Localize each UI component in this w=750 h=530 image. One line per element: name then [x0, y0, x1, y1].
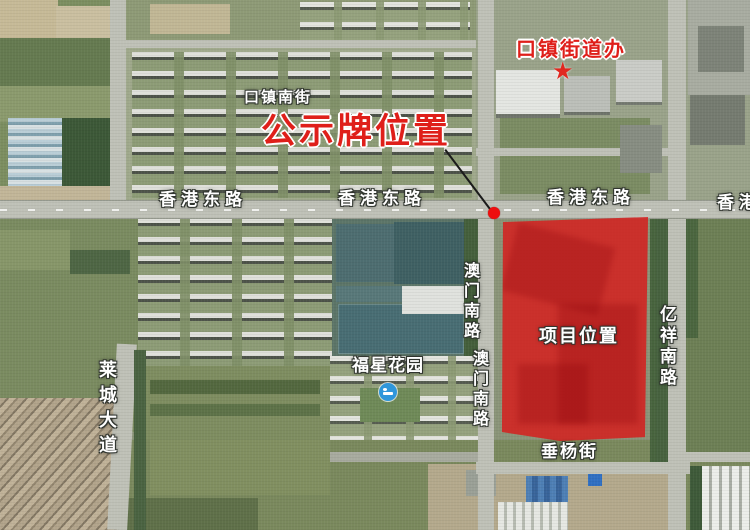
star-icon: ★ — [552, 60, 574, 84]
field-patch — [0, 38, 112, 86]
hk-east-road-label-center: 香港东路 — [338, 190, 426, 207]
project-location-label: 项目位置 — [539, 327, 619, 345]
fuxing-garden-label: 福星花园 — [352, 357, 424, 374]
field-patch — [0, 230, 70, 270]
field-patch — [138, 366, 336, 440]
warehouse — [498, 502, 568, 530]
field-patch — [0, 86, 112, 122]
tree-cluster — [690, 466, 702, 530]
road-chuiyang-street — [330, 452, 478, 462]
aomen-south-road-label-upper: 澳门南路 — [461, 262, 477, 342]
overlay-shade — [518, 364, 588, 424]
building-rows — [300, 2, 470, 40]
road-vertical-left — [110, 0, 126, 204]
building — [690, 95, 745, 145]
building — [620, 125, 662, 173]
laicheng-avenue-label: 莱城大道 — [98, 360, 116, 460]
notice-board-label: 公示牌位置 — [261, 114, 451, 149]
hk-east-road-label-edge: 香港 — [717, 194, 750, 211]
pond — [394, 222, 466, 284]
minor-road — [126, 40, 476, 48]
kouzhen-south-street-label: 口镇南街 — [244, 90, 312, 105]
field-patch — [150, 4, 230, 34]
chuiyang-street-label: 垂杨街 — [541, 443, 598, 460]
road-yixiang-south — [668, 0, 686, 530]
greenhouse-roofs — [8, 118, 62, 186]
building — [496, 70, 560, 118]
road-chuiyang-street — [476, 462, 690, 474]
hk-east-road-label-left: 香港东路 — [159, 191, 247, 208]
yixiang-south-road-label: 亿祥南路 — [658, 305, 675, 389]
tree-cluster — [70, 250, 130, 274]
pond — [336, 224, 394, 282]
building — [402, 286, 464, 314]
minor-road — [686, 452, 750, 462]
street-office-label: 口镇街道办 — [516, 40, 626, 60]
hk-east-road-label-right: 香港东路 — [547, 189, 635, 206]
building — [698, 26, 744, 72]
road-center-line — [0, 209, 750, 211]
tree-cluster — [62, 118, 110, 188]
field-patch — [56, 6, 114, 40]
tree-cluster — [150, 404, 320, 416]
tree-cluster — [686, 218, 698, 338]
field-patch — [0, 0, 58, 38]
field-patch — [150, 440, 330, 495]
aomen-south-road-label-lower: 澳门南路 — [470, 350, 486, 430]
notice-board-dot — [488, 207, 500, 219]
hotel-poi-icon — [379, 383, 397, 401]
building-rows — [702, 466, 750, 530]
building — [616, 60, 662, 105]
overlay-shade — [501, 222, 616, 315]
factory-blue-roof — [526, 476, 568, 502]
tree-cluster — [150, 380, 320, 394]
road-aomen-south — [478, 0, 494, 530]
tree-cluster — [134, 350, 146, 530]
building-rows — [138, 218, 336, 366]
satellite-map: 口镇街道办 ★ 口镇南街 公示牌位置 香港东路 香港东路 香港东路 香港 澳门南… — [0, 0, 750, 530]
